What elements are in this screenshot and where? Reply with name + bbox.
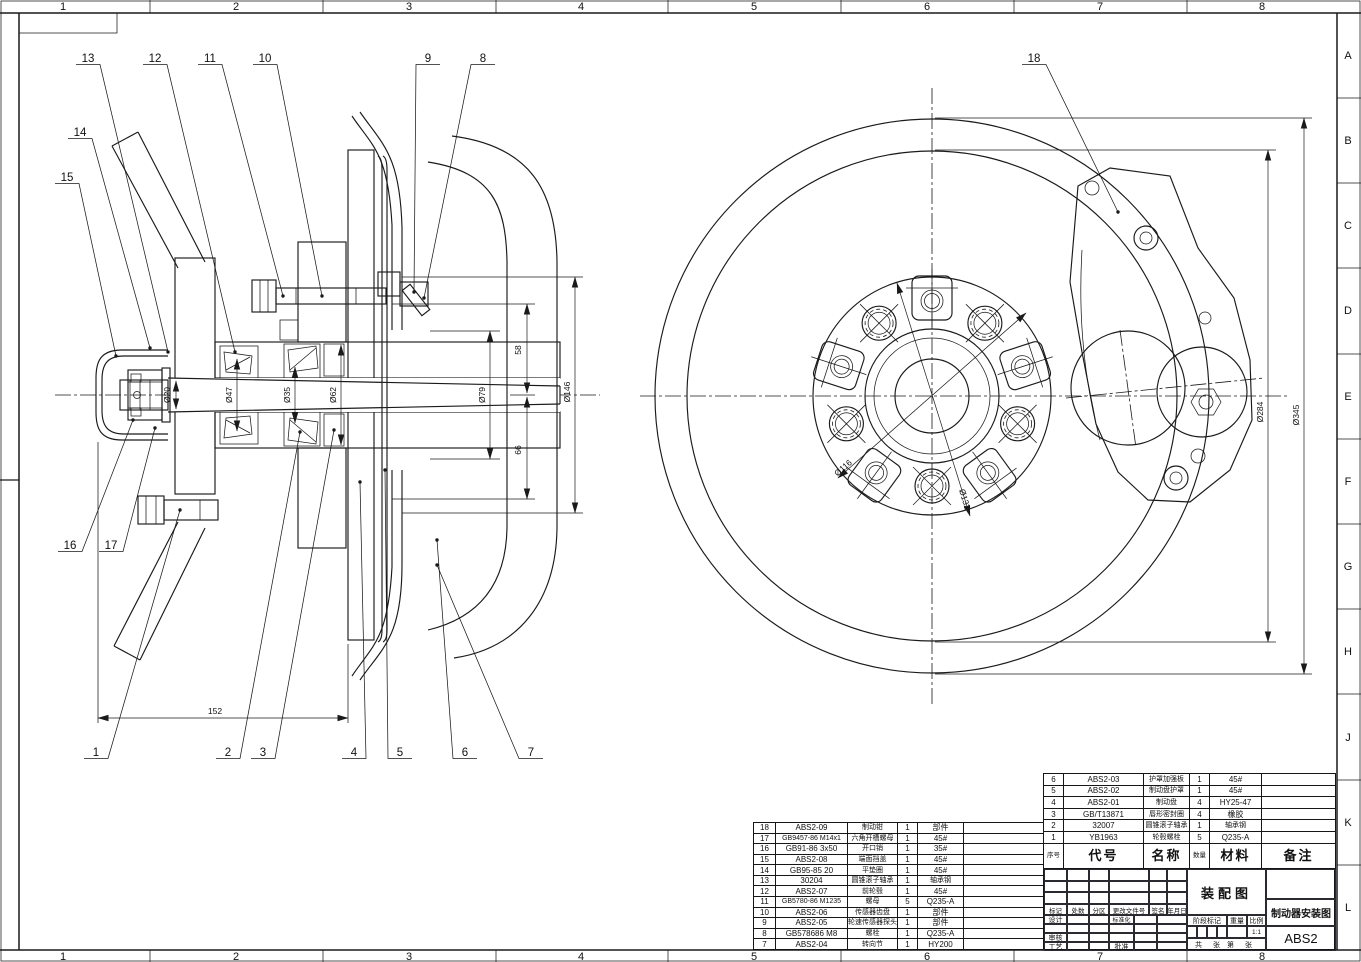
svg-text:5: 5	[751, 951, 757, 962]
bom-row: 17GB9457-86 M14x1六角开槽螺母145#	[754, 833, 1044, 844]
svg-text:18: 18	[1028, 53, 1041, 65]
svg-text:Ø35: Ø35	[282, 387, 292, 403]
svg-text:6: 6	[462, 747, 468, 759]
bom-row: 12ABS2-07前轮毂145#	[754, 886, 1044, 897]
balloon-6: 6	[435, 538, 477, 759]
svg-text:L: L	[1345, 902, 1351, 914]
title-block: 标记 处数 分区 更改文件号 签名 年月日 设计 标准化 审核 工艺 批准 装配…	[1043, 868, 1335, 950]
zone-row-labels: A B C D E F G H J K L	[1344, 50, 1353, 914]
svg-text:4: 4	[351, 747, 358, 759]
balloon-11: 11	[198, 53, 285, 298]
bom-row: 11GB5780-86 M1235螺母5Q235-A	[754, 897, 1044, 908]
svg-text:Ø47: Ø47	[224, 387, 234, 403]
bom-row: 14GB95-85 20平垫圈145#	[754, 865, 1044, 876]
svg-text:Ø20: Ø20	[162, 387, 172, 403]
label-count: 处数	[1067, 904, 1089, 915]
sheet-count-row: 共 张 第 张	[1187, 938, 1266, 951]
svg-text:6: 6	[924, 951, 930, 962]
svg-text:D: D	[1344, 305, 1352, 317]
sheet-total-label: 共	[1195, 940, 1202, 950]
bom-row: 1330204圆锥滚子轴承1轴承钢	[754, 875, 1044, 886]
scale-value: 1:1	[1247, 926, 1266, 938]
balloon-8: 8	[422, 53, 495, 300]
spindle	[120, 378, 560, 412]
balloon-1: 1	[84, 508, 182, 759]
label-standardization: 标准化	[1109, 915, 1134, 924]
svg-text:3: 3	[260, 747, 266, 759]
label-audit: 审核	[1044, 933, 1067, 942]
svg-text:1: 1	[60, 1, 66, 13]
bom-row: 7ABS2-04转向节1HY200	[754, 939, 1044, 950]
svg-text:10: 10	[259, 53, 272, 65]
balloon-3: 3	[251, 428, 336, 759]
svg-text:8: 8	[1259, 1, 1265, 13]
balloon-14: 14	[68, 127, 152, 350]
svg-text:7: 7	[528, 747, 534, 759]
svg-text:1: 1	[93, 747, 99, 759]
bom-header-row: 序号 代号 名称 数量 材料 备注	[1044, 843, 1336, 868]
svg-text:Ø62: Ø62	[328, 387, 338, 403]
svg-text:Ø345: Ø345	[1291, 404, 1301, 425]
bom-row: 6ABS2-03护罩加强板145#	[1044, 774, 1336, 786]
parts-list-right: 6ABS2-03护罩加强板145# 5ABS2-02制动盘护罩145# 4ABS…	[1043, 773, 1336, 869]
disc-mount-bolt	[252, 280, 386, 312]
svg-text:7: 7	[1097, 951, 1103, 962]
cad-drawing-sheet: { "sheet": { "cols": ["1","2","3","4","5…	[0, 0, 1361, 962]
svg-text:3: 3	[406, 1, 412, 13]
svg-text:11: 11	[204, 53, 216, 65]
svg-text:9: 9	[425, 53, 431, 65]
bom-row: 18ABS2-09制动钳1部件	[754, 823, 1044, 834]
sheet-number-label: 第	[1227, 940, 1234, 950]
svg-text:3: 3	[406, 951, 412, 962]
knuckle-section-top	[175, 258, 215, 380]
label-zone: 分区	[1089, 904, 1109, 915]
balloon-12: 12	[143, 53, 237, 354]
svg-text:5: 5	[751, 1, 757, 13]
label-change-doc: 更改文件号	[1109, 904, 1149, 915]
svg-text:8: 8	[480, 53, 486, 65]
bom-row: 4ABS2-01制动盘4HY25-47	[1044, 797, 1336, 809]
bom-row: 232007圆锥滚子轴承1轴承钢	[1044, 820, 1336, 832]
bom-row: 8GB578686 M8螺栓1Q235-A	[754, 928, 1044, 939]
svg-text:6: 6	[924, 1, 930, 13]
balloon-10: 10	[253, 53, 324, 298]
svg-text:15: 15	[61, 172, 74, 184]
svg-text:Ø132: Ø132	[957, 488, 973, 511]
balloon-16: 16	[58, 418, 135, 552]
drawing-number: ABS2	[1266, 926, 1336, 951]
front-view: Ø116 Ø132 Ø284 Ø345	[640, 88, 1312, 706]
svg-text:2: 2	[233, 951, 239, 962]
balloon-13: 13	[76, 53, 170, 354]
brake-caliper	[1066, 168, 1264, 502]
label-date: 年月日	[1167, 904, 1187, 915]
svg-text:2: 2	[225, 747, 231, 759]
svg-text:12: 12	[149, 53, 162, 65]
bleed-screw-hex	[1191, 389, 1221, 415]
bom-row: 15ABS2-08端面挡盖145#	[754, 854, 1044, 865]
drawing-title: 制动器安装图	[1266, 899, 1336, 926]
bom-row: 9ABS2-05轮速传感器探头1部件	[754, 918, 1044, 929]
label-weight: 重量	[1227, 915, 1247, 926]
balloon-9: 9	[412, 53, 440, 294]
label-approve: 批准	[1109, 942, 1134, 951]
label-process: 工艺	[1044, 942, 1067, 951]
svg-text:2: 2	[233, 1, 239, 13]
bom-row: 1YB1963轮毂螺栓5Q235-A	[1044, 831, 1336, 843]
label-design: 设计	[1044, 915, 1067, 924]
svg-text:B: B	[1344, 135, 1351, 147]
svg-text:A: A	[1344, 50, 1352, 62]
svg-text:K: K	[1344, 817, 1352, 829]
label-scale: 比例	[1247, 915, 1266, 926]
svg-text:G: G	[1344, 561, 1353, 573]
svg-text:5: 5	[397, 747, 403, 759]
bom-row: 16GB91-86 3x50开口销135#	[754, 844, 1044, 855]
zone-reference-box	[19, 13, 117, 33]
assembly-drawing-label: 装配图	[1187, 869, 1266, 915]
svg-text:4: 4	[578, 1, 584, 13]
bom-row: 3GB/T13871唇形密封圈4橡胶	[1044, 808, 1336, 820]
bom-row: 5ABS2-02制动盘护罩145#	[1044, 785, 1336, 797]
svg-text:F: F	[1345, 476, 1352, 488]
bom-row: 10ABS2-06传感器齿盘1部件	[754, 907, 1044, 918]
label-signature: 签名	[1149, 904, 1167, 915]
balloon-17: 17	[99, 426, 157, 552]
sensor-ring-section	[280, 320, 298, 340]
svg-text:14: 14	[74, 127, 87, 139]
balloon-18: 18	[1022, 53, 1120, 214]
balloon-15: 15	[55, 172, 118, 358]
label-mark: 标记	[1044, 904, 1067, 915]
svg-text:J: J	[1345, 732, 1351, 744]
balloon-7: 7	[435, 563, 543, 759]
svg-text:58: 58	[513, 345, 523, 355]
svg-text:C: C	[1344, 220, 1352, 232]
svg-text:66: 66	[513, 445, 523, 455]
svg-text:7: 7	[1097, 1, 1103, 13]
svg-text:Ø79: Ø79	[477, 387, 487, 403]
svg-text:4: 4	[578, 951, 584, 962]
svg-text:E: E	[1344, 391, 1351, 403]
svg-text:1: 1	[60, 951, 66, 962]
wheel-stud	[138, 496, 218, 524]
svg-text:16: 16	[64, 540, 77, 552]
svg-text:Ø146: Ø146	[562, 381, 572, 402]
label-stage-mark: 阶段标记	[1187, 915, 1227, 926]
balloon-2: 2	[216, 430, 302, 759]
svg-text:8: 8	[1259, 951, 1265, 962]
zone-column-labels-top: 1 2 3 4 5 6 7 8	[60, 1, 1265, 13]
svg-text:H: H	[1344, 646, 1352, 658]
svg-text:13: 13	[82, 53, 95, 65]
svg-text:17: 17	[105, 540, 118, 552]
section-view: Ø20 Ø47 Ø35 Ø62 Ø79 58 66 Ø146 15	[55, 112, 600, 723]
knuckle-section-bottom	[175, 410, 215, 494]
parts-list-left: 18ABS2-09制动钳1部件 17GB9457-86 M14x1六角开槽螺母1…	[753, 822, 1044, 950]
zone-column-labels-bottom: 1 2 3 4 5 6 7 8	[60, 951, 1265, 962]
svg-text:Ø284: Ø284	[1255, 401, 1265, 422]
svg-text:152: 152	[208, 706, 222, 716]
